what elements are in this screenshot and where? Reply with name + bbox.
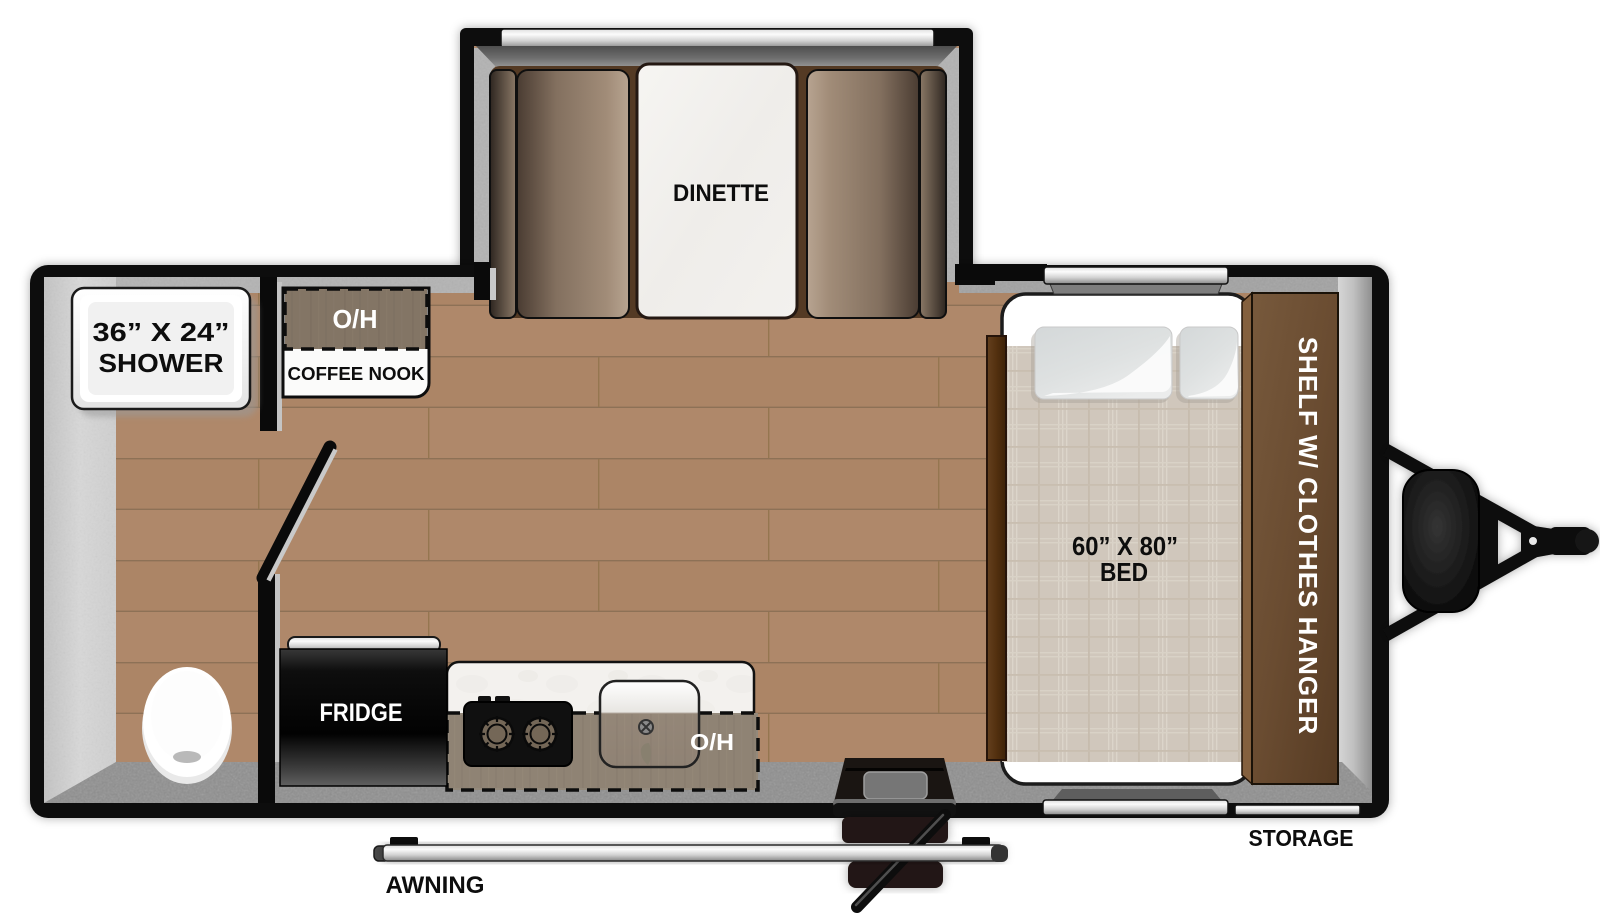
svg-text:SHELF W/ CLOTHES HANGER: SHELF W/ CLOTHES HANGER <box>1293 337 1323 736</box>
svg-text:STORAGE: STORAGE <box>1249 825 1354 851</box>
svg-text:FRIDGE: FRIDGE <box>320 699 403 727</box>
svg-text:SHOWER: SHOWER <box>99 348 224 378</box>
svg-text:O/H: O/H <box>333 304 378 334</box>
svg-text:AWNING: AWNING <box>386 872 485 899</box>
svg-text:36” X 24”: 36” X 24” <box>93 317 230 347</box>
svg-text:DINETTE: DINETTE <box>673 180 769 207</box>
svg-text:COFFEE NOOK: COFFEE NOOK <box>288 364 425 384</box>
svg-text:BED: BED <box>1100 557 1148 587</box>
svg-text:O/H: O/H <box>690 729 734 755</box>
